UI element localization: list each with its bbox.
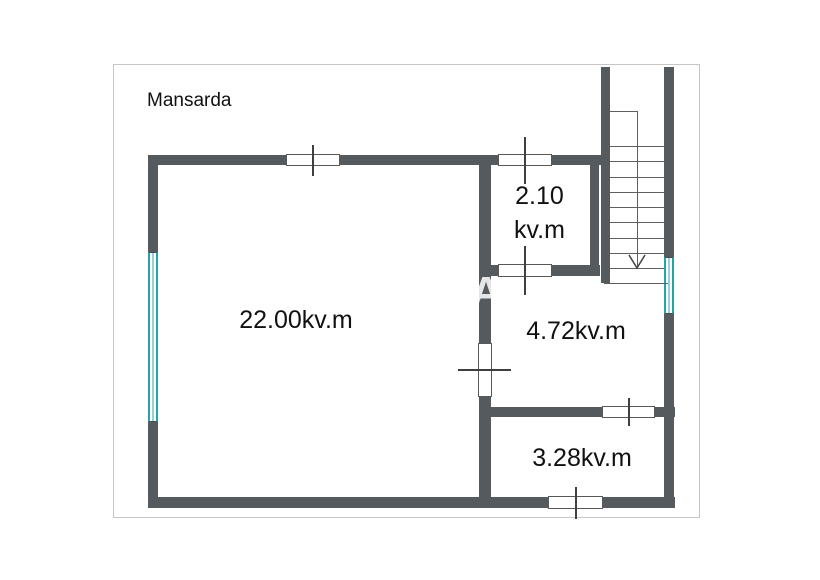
wall-stair-left: [601, 67, 610, 283]
watermark-letter: A: [462, 268, 510, 316]
window-right-wall: [664, 257, 674, 314]
room-label-hall: 4.72kv.m: [491, 317, 661, 346]
stair-down-arrow-icon: [627, 252, 647, 272]
door-closet-bottom-tick: [524, 246, 526, 295]
stair-bottom-step: [604, 283, 668, 284]
wall-closet-right: [590, 165, 599, 265]
wall-top-segment-1: [148, 155, 286, 165]
door-bottom-bath-tick: [575, 487, 577, 519]
window-left-wall: [148, 252, 158, 422]
door-closet-top-tick: [524, 137, 526, 184]
room-label-closet-value: 2.10: [489, 179, 590, 213]
wall-closet-bottom-2: [552, 265, 600, 276]
wall-bottom-segment-1: [148, 497, 548, 508]
wall-hall-bath-divider-1: [479, 407, 602, 417]
wall-top-segment-3: [552, 155, 601, 165]
room-label-closet-unit: kv.m: [489, 213, 590, 247]
wall-hall-bath-divider-2: [655, 407, 675, 417]
room-label-living: 22.00kv.m: [160, 306, 432, 335]
wall-left-lower: [148, 422, 158, 497]
floor-plan-canvas: Mansarda: [0, 0, 820, 580]
stair-landing-line: [610, 111, 637, 112]
stair-run-line: [637, 111, 638, 266]
wall-top-segment-2: [340, 155, 498, 165]
wall-stair-right: [664, 67, 674, 257]
door-hall-bath-tick: [628, 398, 630, 426]
room-label-closet: 2.10 kv.m: [489, 179, 590, 247]
door-living-hall-tick: [458, 369, 511, 371]
door-top-main-tick: [312, 145, 314, 176]
plan-title: Mansarda: [147, 90, 232, 112]
staircase: [610, 67, 664, 283]
wall-left-upper: [148, 155, 158, 252]
wall-bottom-segment-2: [603, 497, 675, 508]
room-label-bath: 3.28kv.m: [497, 444, 667, 473]
